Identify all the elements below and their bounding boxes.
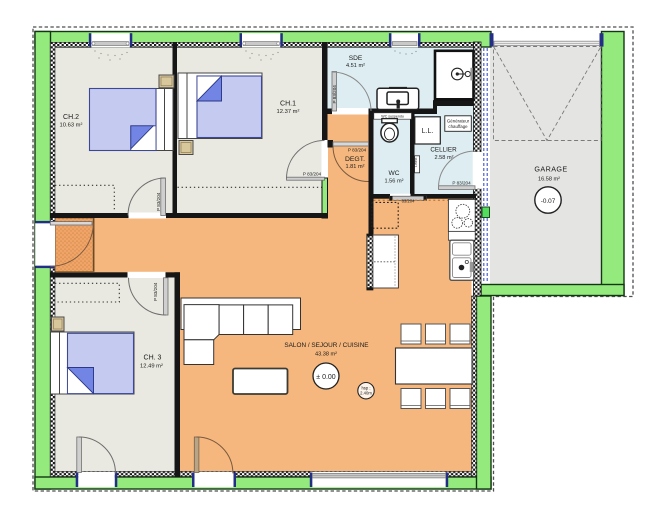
svg-text:-0.07: -0.07: [541, 198, 556, 205]
svg-text:SALON / SEJOUR / CUISINE: SALON / SEJOUR / CUISINE: [284, 342, 368, 349]
svg-text:± 0.00: ± 0.00: [316, 374, 336, 381]
svg-text:4.51 m²: 4.51 m²: [346, 63, 365, 69]
svg-text:DEGT.: DEGT.: [345, 156, 365, 163]
svg-text:chauffage: chauffage: [448, 124, 468, 129]
svg-text:T.élect: T.élect: [414, 158, 418, 168]
svg-text:P 83/204: P 83/204: [332, 85, 337, 104]
svg-text:P 83/204: P 83/204: [348, 147, 367, 152]
svg-text:CH.2: CH.2: [63, 114, 79, 121]
svg-text:CH.1: CH.1: [280, 101, 296, 108]
svg-text:P 83/204: P 83/204: [153, 282, 158, 301]
svg-text:GARAGE: GARAGE: [534, 165, 567, 174]
svg-text:CELLIER: CELLIER: [430, 147, 457, 154]
svg-text:2.58 m²: 2.58 m²: [435, 155, 454, 161]
svg-text:43.38 m²: 43.38 m²: [315, 352, 337, 358]
svg-text:WC: WC: [389, 170, 400, 177]
svg-text:1.81 m²: 1.81 m²: [346, 164, 365, 170]
svg-text:12.49 m²: 12.49 m²: [140, 364, 163, 370]
svg-text:16.58 m²: 16.58 m²: [538, 177, 560, 183]
svg-text:2.40m: 2.40m: [360, 390, 372, 395]
svg-text:1.56 m²: 1.56 m²: [385, 178, 404, 184]
svg-text:CH. 3: CH. 3: [144, 355, 162, 362]
svg-text:Générateur: Générateur: [447, 119, 470, 124]
svg-text:P 83/204: P 83/204: [303, 172, 322, 177]
svg-text:P 83/204: P 83/204: [156, 192, 161, 211]
svg-text:10.63 m²: 10.63 m²: [60, 123, 83, 129]
svg-text:L.L.: L.L.: [422, 128, 434, 135]
svg-text:83/204: 83/204: [402, 198, 415, 203]
svg-text:P 83/204: P 83/204: [452, 181, 471, 186]
svg-text:SDE: SDE: [349, 55, 363, 62]
svg-text:12.37 m²: 12.37 m²: [277, 109, 300, 115]
